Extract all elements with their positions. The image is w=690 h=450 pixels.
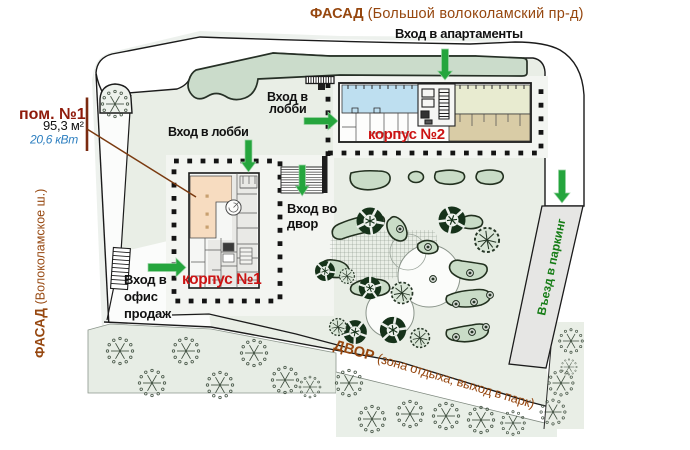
svg-text:двор: двор — [287, 216, 318, 231]
svg-text:20,6 кВт: 20,6 кВт — [29, 133, 78, 147]
svg-text:ФАСАД (Волоколамское ш.): ФАСАД (Волоколамское ш.) — [33, 189, 48, 358]
svg-text:продаж: продаж — [124, 306, 172, 321]
svg-text:Вход в апартаменты: Вход в апартаменты — [395, 26, 523, 41]
svg-text:офис: офис — [124, 289, 158, 304]
svg-text:корпус №1: корпус №1 — [182, 271, 262, 288]
svg-text:корпус №2: корпус №2 — [368, 126, 445, 143]
svg-text:Вход во: Вход во — [287, 201, 337, 216]
svg-text:лобби: лобби — [269, 102, 307, 116]
svg-text:ФАСАД (Большой волоколамский п: ФАСАД (Большой волоколамский пр-д) — [310, 6, 584, 22]
svg-text:Вход в: Вход в — [124, 272, 167, 287]
svg-text:Вход в лобби: Вход в лобби — [168, 125, 248, 139]
svg-text:95,3 м²: 95,3 м² — [43, 118, 85, 133]
